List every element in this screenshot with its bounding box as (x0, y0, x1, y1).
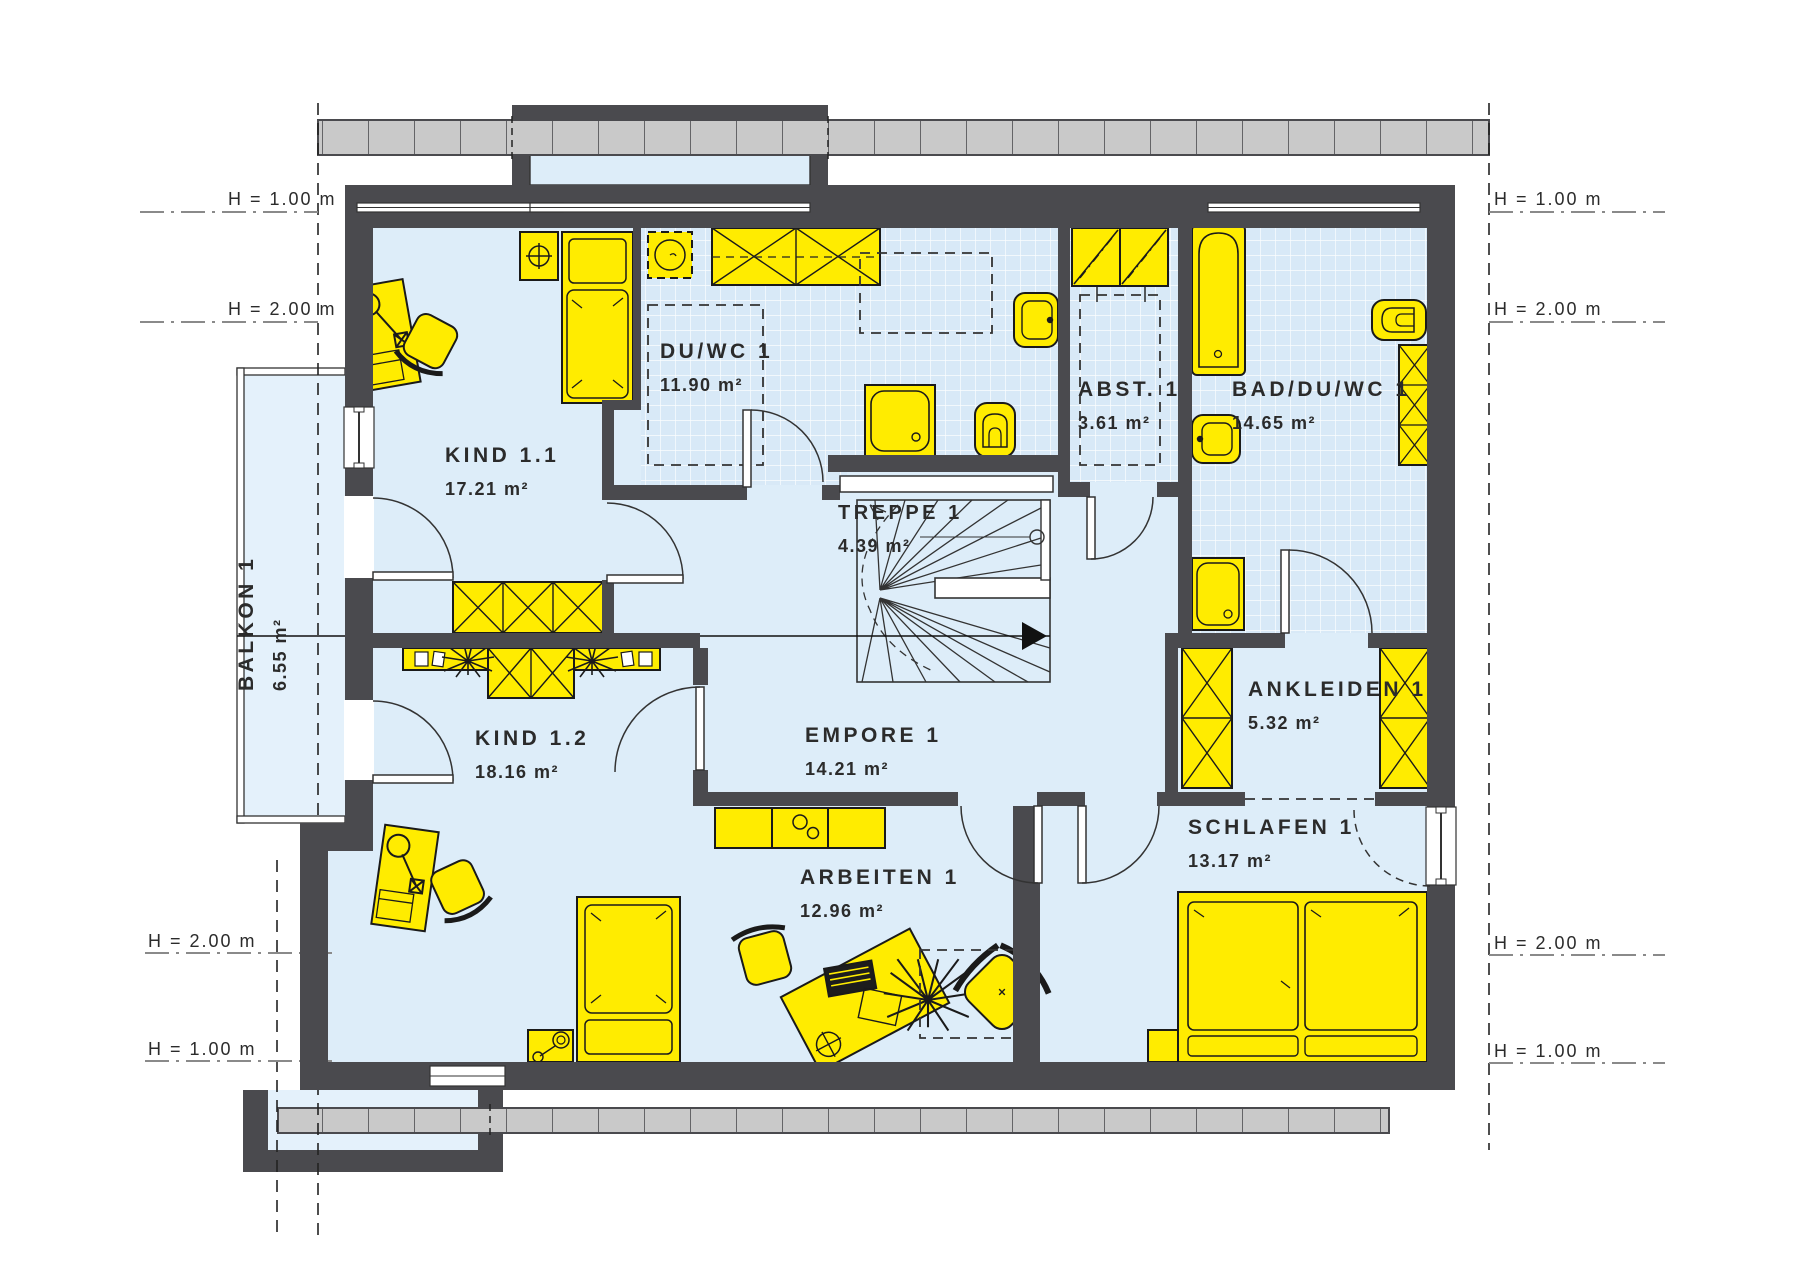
wall-interior (1368, 633, 1427, 648)
height-marker-label: H = 1.00 m (1494, 189, 1603, 210)
wall-interior (828, 455, 1058, 472)
wall-interior (1165, 792, 1245, 806)
bathroom-cabinet (1399, 345, 1430, 465)
wall-interior (1192, 633, 1285, 648)
roof-band-bottom (278, 1104, 1389, 1137)
wall-interior (693, 770, 708, 792)
french-door (1426, 807, 1456, 885)
height-marker-label: H = 1.00 m (228, 189, 337, 210)
window (344, 407, 374, 468)
floor-plan-page: KIND 1.1 17.21 m² KIND 1.2 18.16 m² DU/W… (0, 0, 1800, 1273)
door-opening (344, 496, 374, 578)
shower (1192, 558, 1244, 630)
stair-handrail (935, 578, 1050, 598)
wardrobe (453, 582, 603, 633)
balcony (237, 368, 345, 823)
wall-interior (633, 228, 641, 408)
height-marker-label: H = 2.00 m (228, 299, 337, 320)
wall-interior (614, 485, 747, 500)
door-opening (344, 700, 374, 780)
height-marker-label: H = 1.00 m (148, 1039, 257, 1060)
wall-interior (602, 580, 614, 633)
bathtub (1192, 225, 1245, 375)
bed (577, 897, 680, 1062)
wall-interior (602, 408, 614, 500)
height-marker-label: H = 2.00 m (1494, 933, 1603, 954)
wall-exterior-right (1427, 185, 1455, 1090)
wall-interior (1058, 228, 1070, 497)
height-marker-label: H = 2.00 m (148, 931, 257, 952)
sideboard (715, 808, 885, 848)
wardrobe (488, 648, 574, 698)
wardrobe (712, 228, 880, 285)
wall-interior (1070, 482, 1090, 497)
nightstand (1148, 1030, 1178, 1062)
height-marker-label: H = 2.00 m (1494, 299, 1603, 320)
wall-interior (693, 792, 958, 806)
wall-interior (822, 485, 840, 500)
wall-exterior-step (300, 823, 373, 851)
double-bed (1178, 892, 1427, 1062)
sink (1014, 293, 1058, 347)
wall-interior (1178, 228, 1192, 648)
washing-machine (648, 232, 692, 278)
wall-interior (1157, 792, 1165, 806)
wall-interior (1375, 792, 1427, 806)
sink (1192, 415, 1240, 463)
wall-exterior-left-lower (300, 851, 328, 1090)
dormer-window (530, 203, 810, 212)
wardrobe (1182, 648, 1232, 788)
wall-interior (1037, 792, 1085, 806)
window (1208, 203, 1420, 212)
toilet (975, 403, 1015, 457)
wall-interior (1157, 482, 1178, 497)
shower (865, 385, 935, 457)
bed (562, 232, 633, 403)
roof-band-top (318, 116, 1489, 159)
wall-interior (1165, 633, 1178, 792)
nightstand (528, 1030, 573, 1062)
wardrobe (1380, 648, 1430, 788)
stair-handrail (1041, 500, 1050, 580)
nightstand (520, 232, 558, 280)
stair-balustrade (840, 476, 1053, 492)
toilet (1372, 300, 1426, 340)
wall-interior (345, 633, 700, 648)
window (430, 1066, 505, 1086)
height-marker-label: H = 1.00 m (1494, 1041, 1603, 1062)
wall-interior (693, 648, 708, 685)
